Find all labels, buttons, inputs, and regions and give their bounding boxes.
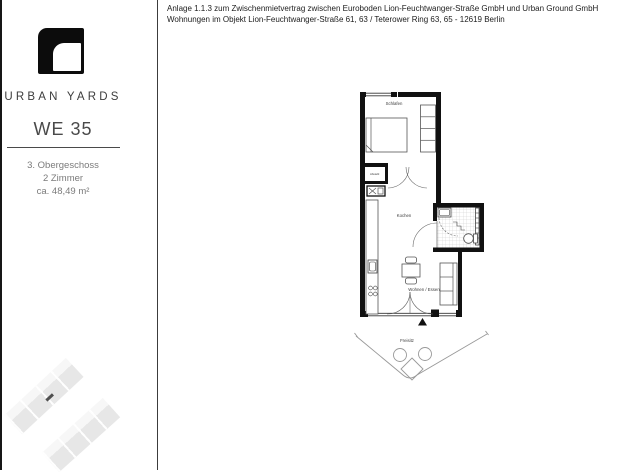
terrace-door-swing xyxy=(387,292,433,314)
door-marker-triangle xyxy=(418,318,427,326)
unit-details: 3. Obergeschoss 2 Zimmer ca. 48,49 m² xyxy=(2,159,124,198)
header-line-2: Wohnungen im Objekt Lion-Feuchtwanger-St… xyxy=(167,14,619,25)
bathroom xyxy=(413,208,480,248)
wardrobe xyxy=(421,105,436,152)
brand-name: URBAN YARDS xyxy=(2,91,124,103)
contract-header-note: Anlage 1.1.3 zum Zwischenmietvertrag zwi… xyxy=(167,3,619,25)
urban-yards-logo-icon xyxy=(38,28,84,74)
site-plan-building-block xyxy=(42,398,120,472)
sofa xyxy=(440,263,457,305)
room-label-living: Wohnen / Essen xyxy=(408,287,440,292)
sidebar-rule xyxy=(7,147,120,148)
bathroom-door-swing xyxy=(413,223,437,247)
room-label-bedroom: Schlafen xyxy=(386,101,403,106)
dining-table xyxy=(402,257,420,284)
floor-plan: Schlafen Abstellr. Kochen Wohnen / Essen… xyxy=(330,48,510,398)
unit-area: ca. 48,49 m² xyxy=(2,185,124,198)
unit-floor: 3. Obergeschoss xyxy=(2,159,124,172)
kitchen-counter xyxy=(366,200,378,314)
unit-title: WE 35 xyxy=(2,119,124,140)
terrace-furniture xyxy=(394,348,432,381)
header-line-1: Anlage 1.1.3 zum Zwischenmietvertrag zwi… xyxy=(167,3,619,14)
sidebar-divider xyxy=(157,0,158,470)
document-page: { "page": { "background": "#ffffff", "le… xyxy=(0,0,626,470)
unit-rooms: 2 Zimmer xyxy=(2,172,124,185)
room-label-kitchen: Kochen xyxy=(397,213,412,218)
toilet xyxy=(464,234,478,244)
bedroom-door-swing xyxy=(388,167,427,188)
sidebar: URBAN YARDS WE 35 3. Obergeschoss 2 Zimm… xyxy=(2,0,124,470)
room-label-storage: Abstellr. xyxy=(370,172,380,176)
room-label-terrace: Freisitz xyxy=(400,338,414,343)
site-plan-building-block xyxy=(4,358,83,434)
bed xyxy=(366,118,407,152)
washing-machine xyxy=(367,186,385,196)
